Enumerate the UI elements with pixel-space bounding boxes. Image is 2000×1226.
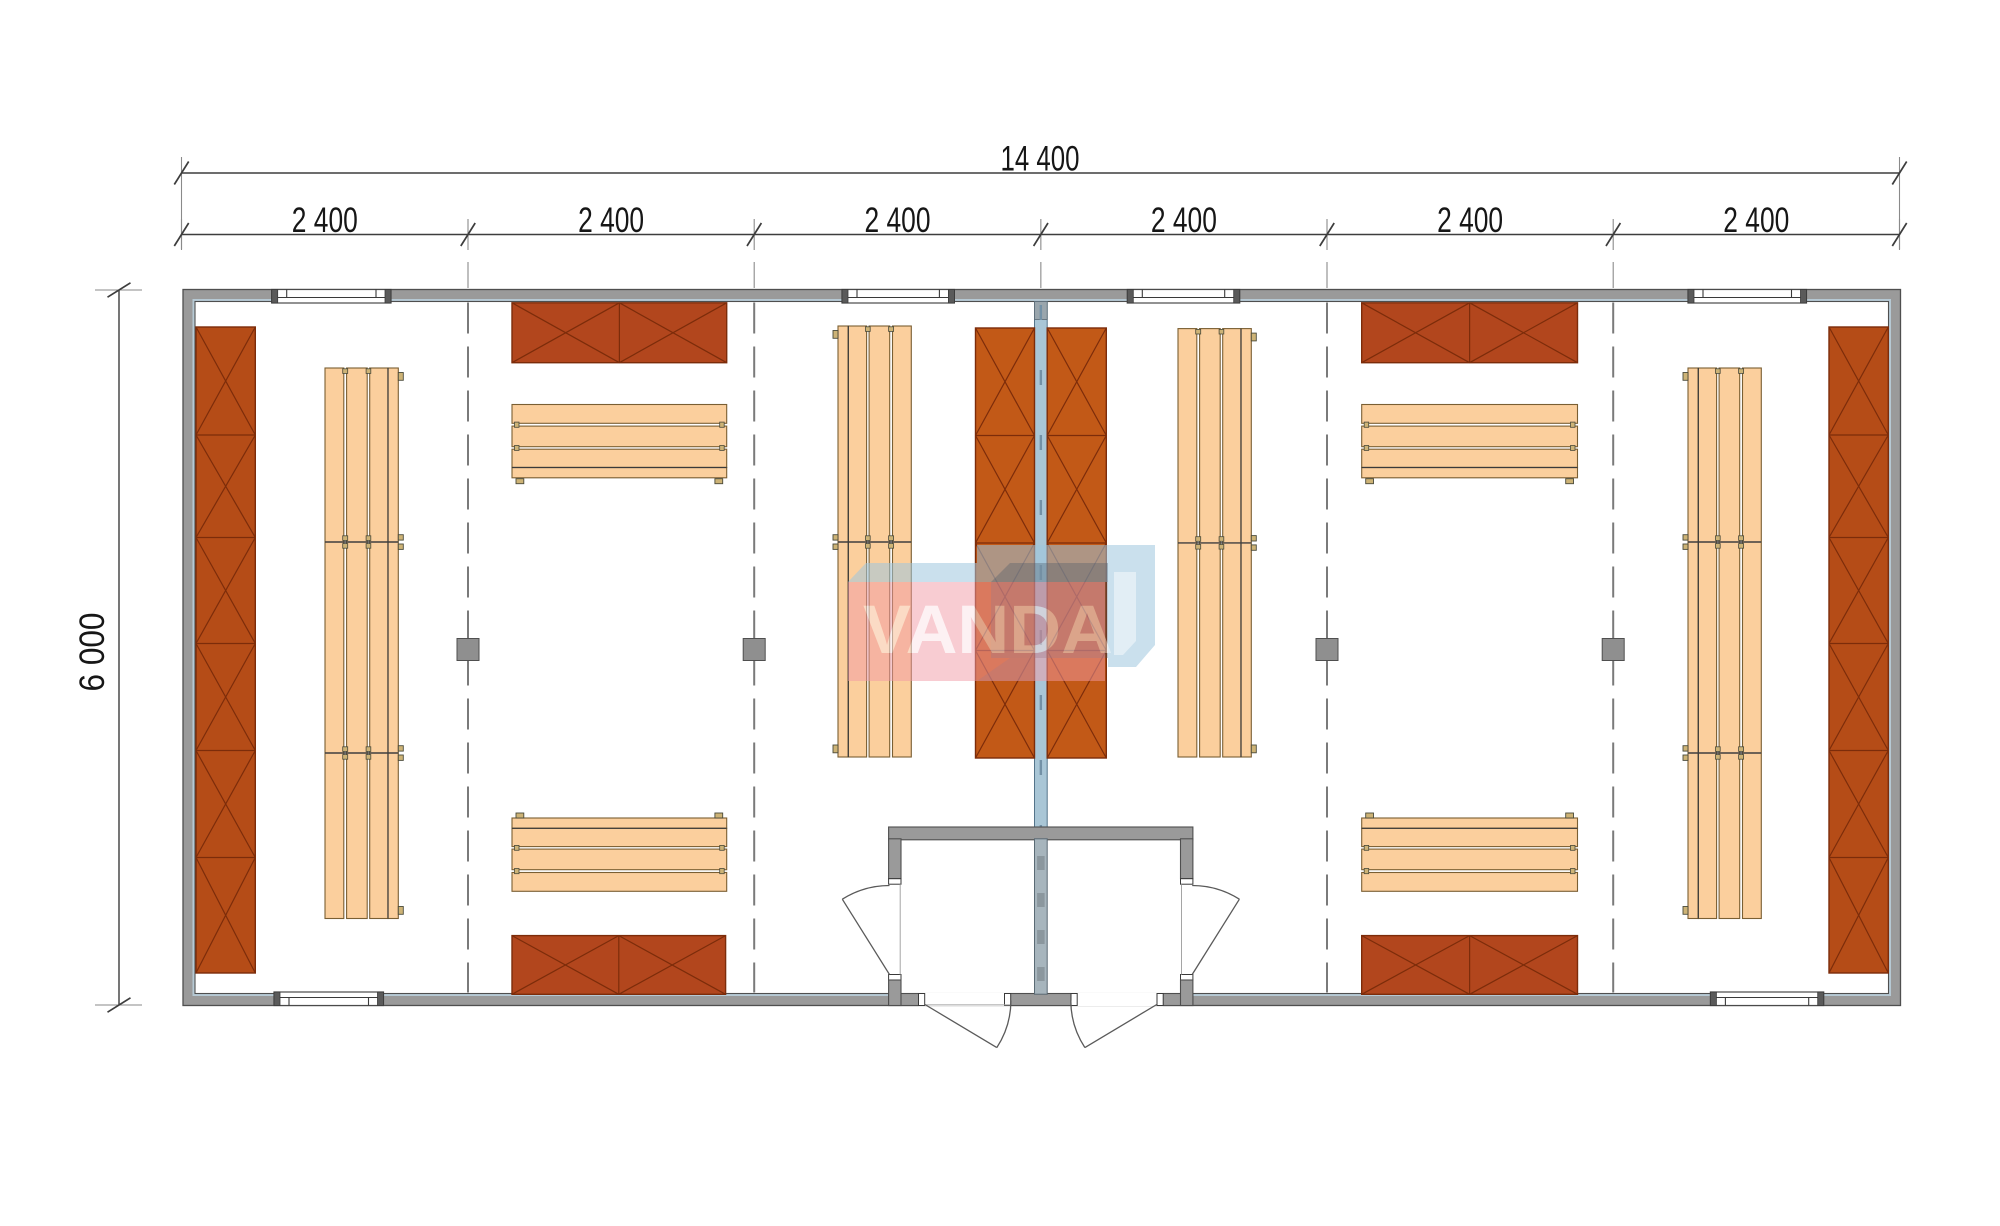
svg-text:2 400: 2 400 — [865, 201, 931, 240]
svg-text:2 400: 2 400 — [1723, 201, 1789, 240]
svg-text:2 400: 2 400 — [578, 201, 644, 240]
svg-text:14 400: 14 400 — [1001, 140, 1080, 179]
svg-text:2 400: 2 400 — [1151, 201, 1217, 240]
svg-text:2 400: 2 400 — [292, 201, 358, 240]
svg-text:6 000: 6 000 — [73, 613, 112, 692]
svg-text:VANDA: VANDA — [863, 591, 1113, 668]
svg-text:2 400: 2 400 — [1437, 201, 1503, 240]
